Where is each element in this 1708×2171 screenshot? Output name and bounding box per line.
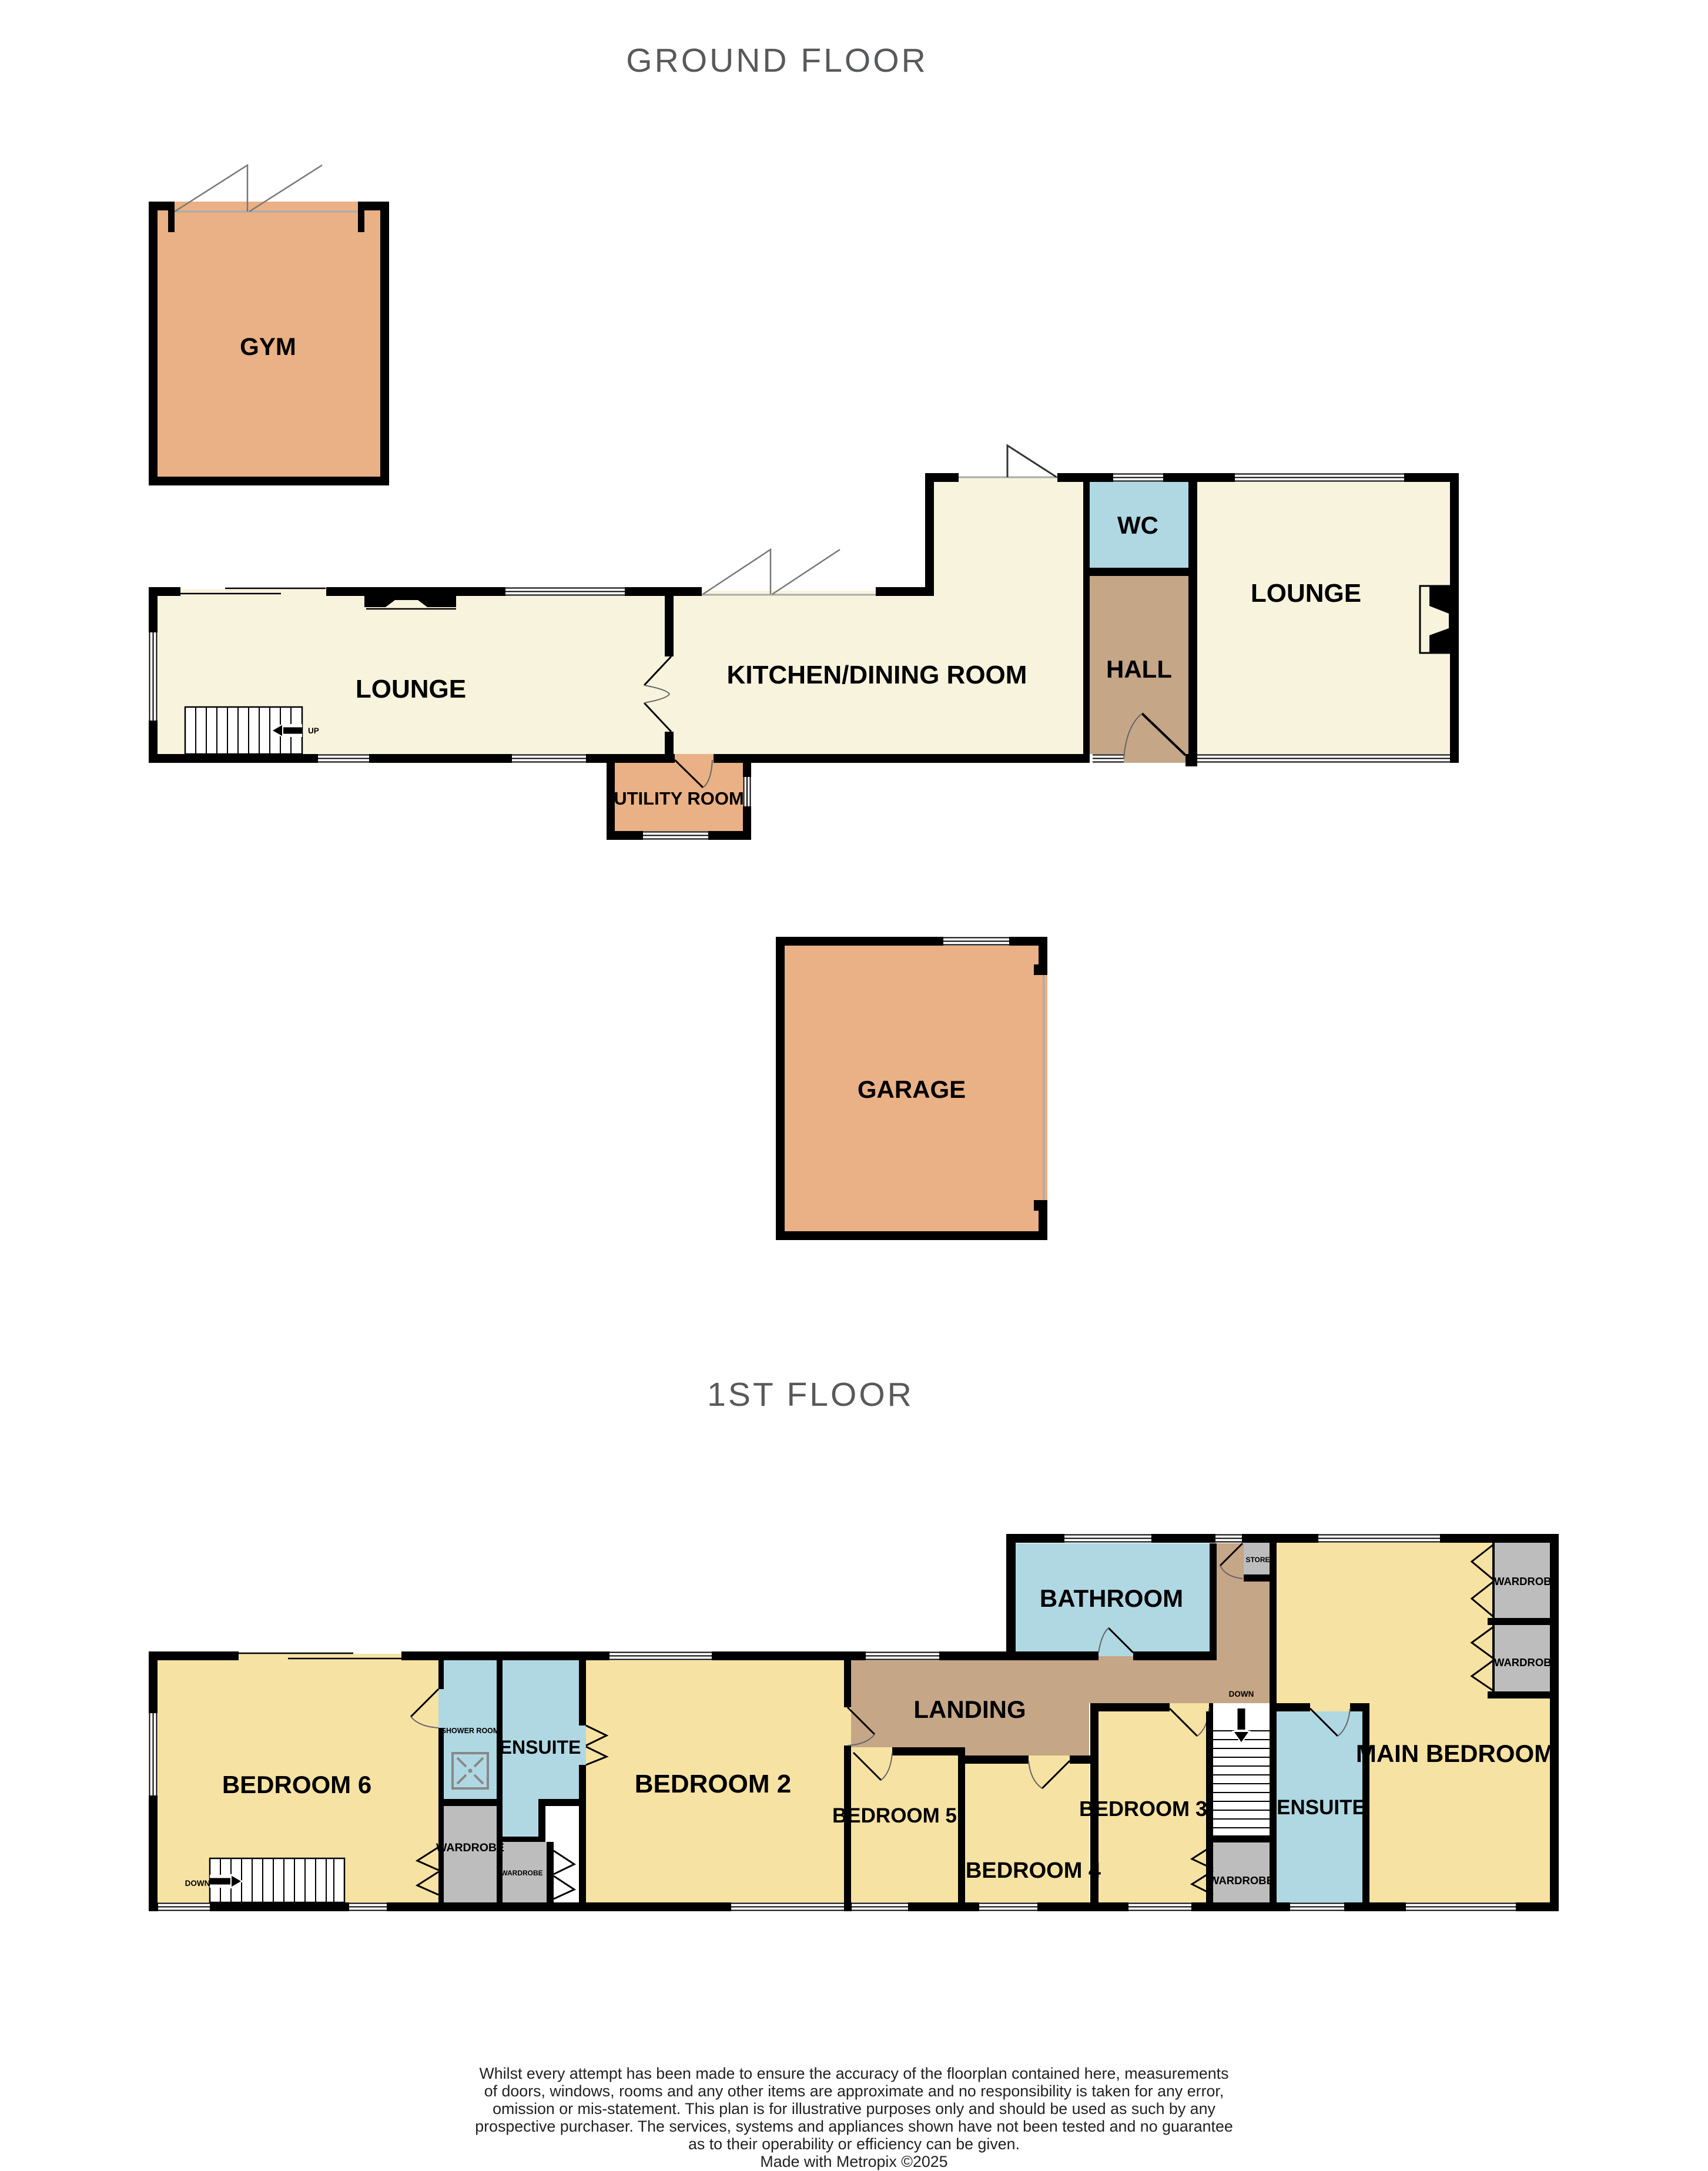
svg-text:Made with Metropix ©2025: Made with Metropix ©2025 xyxy=(760,2153,947,2170)
svg-text:as to their operability or eff: as to their operability or efficiency ca… xyxy=(688,2135,1020,2153)
svg-text:BEDROOM 6: BEDROOM 6 xyxy=(222,1771,371,1798)
svg-text:DOWN: DOWN xyxy=(185,1879,210,1888)
svg-text:UTILITY ROOM: UTILITY ROOM xyxy=(614,788,744,809)
svg-text:GROUND FLOOR: GROUND FLOOR xyxy=(626,42,928,79)
svg-text:WARDROBE: WARDROBE xyxy=(501,1869,542,1877)
svg-text:BEDROOM 2: BEDROOM 2 xyxy=(635,1770,791,1798)
svg-text:WARDROBE: WARDROBE xyxy=(1494,1656,1559,1669)
svg-text:DOWN: DOWN xyxy=(1229,1690,1254,1698)
svg-text:STORE: STORE xyxy=(1245,1556,1270,1564)
svg-text:BEDROOM 4: BEDROOM 4 xyxy=(966,1858,1101,1883)
svg-text:of doors, windows, rooms and a: of doors, windows, rooms and any other i… xyxy=(484,2082,1224,2100)
svg-text:LOUNGE: LOUNGE xyxy=(356,675,466,703)
svg-text:1ST FLOOR: 1ST FLOOR xyxy=(707,1376,914,1413)
svg-text:MAIN BEDROOM: MAIN BEDROOM xyxy=(1356,1740,1555,1767)
svg-text:GARAGE: GARAGE xyxy=(858,1076,966,1103)
svg-text:UP: UP xyxy=(308,726,319,735)
svg-text:BEDROOM 3: BEDROOM 3 xyxy=(1079,1797,1207,1821)
svg-text:WC: WC xyxy=(1117,511,1158,539)
svg-text:omission or mis-statement. Thi: omission or mis-statement. This plan is … xyxy=(493,2100,1215,2118)
svg-text:prospective purchaser. The ser: prospective purchaser. The services, sys… xyxy=(475,2118,1233,2135)
svg-text:HALL: HALL xyxy=(1106,655,1172,683)
svg-text:KITCHEN/DINING ROOM: KITCHEN/DINING ROOM xyxy=(727,661,1027,689)
svg-text:BATHROOM: BATHROOM xyxy=(1040,1584,1183,1612)
svg-text:LOUNGE: LOUNGE xyxy=(1251,579,1361,608)
svg-text:WARDROBE: WARDROBE xyxy=(436,1841,504,1854)
svg-text:GYM: GYM xyxy=(240,333,296,360)
svg-text:ENSUITE: ENSUITE xyxy=(500,1737,581,1758)
svg-text:Whilst every attempt has been: Whilst every attempt has been made to en… xyxy=(479,2065,1228,2082)
svg-text:WARDROBE: WARDROBE xyxy=(1494,1575,1559,1587)
svg-text:WARDROBE: WARDROBE xyxy=(1209,1874,1274,1887)
svg-text:LANDING: LANDING xyxy=(913,1696,1026,1723)
svg-text:BEDROOM 5: BEDROOM 5 xyxy=(832,1804,957,1827)
svg-text:ENSUITE: ENSUITE xyxy=(1277,1796,1366,1819)
svg-text:SHOWER ROOM: SHOWER ROOM xyxy=(441,1727,500,1735)
